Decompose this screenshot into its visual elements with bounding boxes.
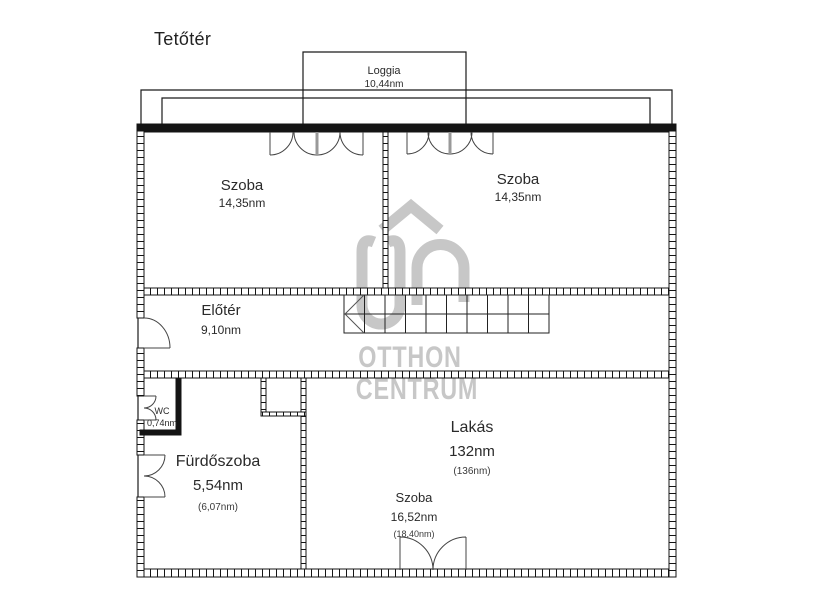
roof-overhang-lines	[141, 52, 672, 124]
door-leaf-arc	[433, 537, 466, 570]
door-leaf-arc	[317, 132, 340, 155]
wall-left-seg4	[137, 497, 144, 577]
room-area: 132nm	[449, 442, 495, 462]
wall-left-seg3	[137, 420, 144, 455]
door-leaf-arc	[471, 132, 493, 154]
room-area: 10,44nm	[365, 78, 404, 91]
wall-bath-room	[301, 378, 306, 569]
wall-right	[669, 131, 676, 577]
door-szoba-bottom	[400, 537, 466, 570]
shaft-bottom-wall	[261, 412, 306, 416]
room-area: 5,54nm	[176, 476, 261, 496]
wall-bottom	[137, 569, 676, 577]
room-label-szoba-right: Szoba 14,35nm	[495, 170, 542, 205]
door-eloter	[144, 318, 170, 348]
room-name: WC	[147, 406, 177, 418]
door-leaf-arc	[294, 132, 317, 155]
room-label-wc: WC 0,74nm	[147, 406, 177, 429]
watermark-logo	[362, 206, 464, 324]
door-leaf-arc	[144, 455, 165, 476]
room-label-eloter: Előtér 9,10nm	[201, 301, 241, 338]
wall-between-szoba-rooms	[383, 132, 388, 289]
room-name: Loggia	[365, 64, 404, 78]
room-label-lakas: Lakás 132nm (136nm)	[449, 418, 495, 478]
room-area: 14,35nm	[219, 196, 266, 212]
roof-overhang-outer-line	[141, 90, 672, 124]
room-area-gross: (6,07nm)	[176, 501, 261, 514]
logo-letter-o	[362, 241, 400, 324]
door-leaf-arc	[407, 132, 429, 154]
wc-bottom-wall	[140, 430, 181, 435]
door-leaf-arc	[400, 537, 433, 570]
room-label-szoba-left: Szoba 14,35nm	[219, 176, 266, 211]
room-area-gross: (18,40nm)	[391, 529, 438, 541]
room-label-furdoszoba: Fürdőszoba 5,54nm (6,07nm)	[176, 452, 261, 514]
wall-top	[137, 124, 676, 132]
door-leaf-arc	[270, 132, 293, 155]
wall-left-seg2	[137, 348, 144, 396]
wall-rooms-eloter	[144, 288, 669, 295]
room-area: 9,10nm	[201, 323, 241, 339]
door-leaf-arc	[144, 476, 165, 497]
room-name: Fürdőszoba	[176, 452, 261, 473]
door-furdoszoba	[144, 455, 165, 497]
logo-letter-c	[417, 244, 464, 305]
wall-eloter-lower	[144, 371, 669, 378]
roof-overhang-inner-line	[162, 98, 650, 124]
room-name: Előtér	[201, 301, 241, 321]
room-name: Lakás	[449, 418, 495, 439]
room-area: 14,35nm	[495, 190, 542, 206]
floorplan-page: OTTHON CENTRUM	[0, 0, 819, 608]
room-area: 16,52nm	[391, 510, 438, 526]
door-szoba-left-loggia	[270, 132, 363, 155]
door-szoba-right-loggia	[407, 132, 493, 154]
room-label-loggia: Loggia 10,44nm	[365, 64, 404, 91]
room-name: Szoba	[495, 170, 542, 190]
logo-roof-chevron	[382, 206, 440, 230]
room-area-gross: (136nm)	[449, 465, 495, 478]
room-label-szoba-bottom: Szoba 16,52nm (18,40nm)	[391, 490, 438, 541]
room-name: Szoba	[391, 490, 438, 507]
wall-left-seg1	[137, 131, 144, 318]
room-name: Szoba	[219, 176, 266, 196]
shaft-left-wall	[261, 378, 266, 414]
page-title: Tetőtér	[154, 29, 211, 50]
door-leaf-arc	[340, 132, 363, 155]
door-leaf-arc	[144, 318, 170, 348]
watermark-brand-line1: OTTHON	[358, 340, 461, 373]
door-leaf-arc	[428, 132, 450, 154]
room-area: 0,74nm	[147, 418, 177, 430]
door-leaf-arc	[450, 132, 472, 154]
